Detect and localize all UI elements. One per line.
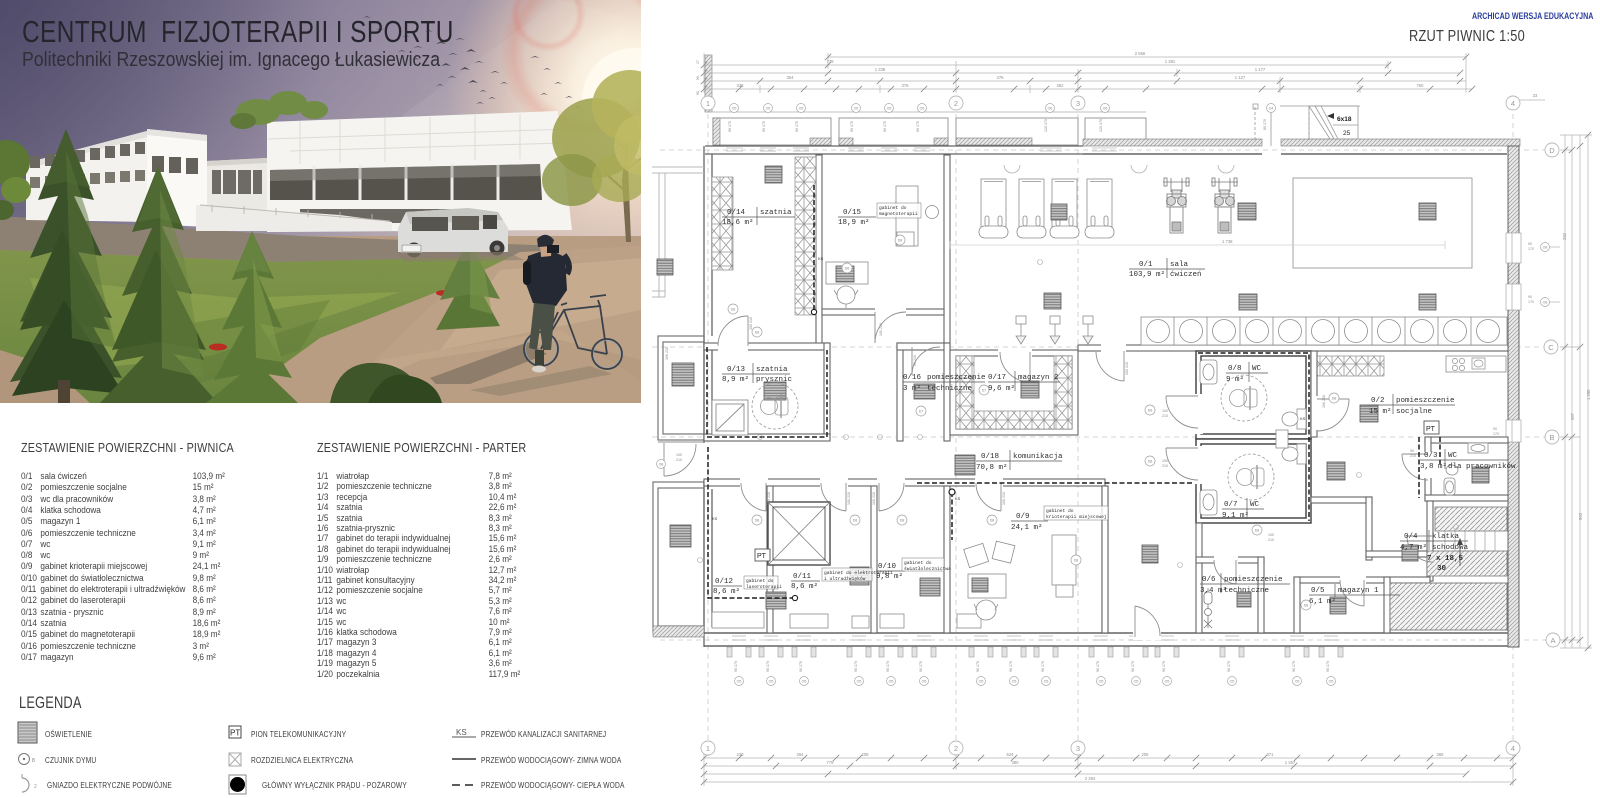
svg-text:90 170: 90 170 (919, 661, 923, 672)
svg-text:0/6: 0/6 (1202, 576, 1216, 584)
svg-text:170: 170 (1528, 300, 1534, 304)
svg-text:90 170: 90 170 (1009, 661, 1013, 672)
svg-text:O5: O5 (887, 107, 892, 111)
svg-text:gabinet do: gabinet do (879, 205, 907, 211)
svg-text:90 170: 90 170 (1041, 661, 1045, 672)
svg-text:9,6 m²: 9,6 m² (988, 384, 1015, 393)
svg-text:O5: O5 (857, 680, 862, 684)
svg-text:sala: sala (1170, 261, 1189, 269)
svg-text:90: 90 (1410, 449, 1414, 453)
svg-text:208: 208 (862, 752, 870, 757)
svg-text:KS: KS (1300, 416, 1306, 421)
svg-text:8,6 m²: 8,6 m² (791, 582, 818, 591)
svg-text:D: D (1549, 146, 1555, 155)
svg-text:KS: KS (712, 516, 718, 521)
svg-text:3: 3 (1076, 99, 1080, 108)
svg-text:D8: D8 (1148, 409, 1153, 413)
svg-text:gabinet do: gabinet do (904, 560, 932, 566)
svg-text:779: 779 (827, 59, 835, 64)
svg-text:1 598: 1 598 (1586, 389, 1591, 400)
svg-text:103,9 m²: 103,9 m² (1129, 270, 1165, 279)
svg-text:100: 100 (1268, 533, 1274, 537)
svg-text:KS: KS (955, 496, 961, 501)
svg-text:4: 4 (1511, 744, 1515, 753)
svg-text:90 170: 90 170 (1292, 661, 1296, 672)
svg-text:3,4 m²: 3,4 m² (1200, 586, 1227, 595)
svg-text:O5: O5 (920, 107, 925, 111)
svg-text:100 210: 100 210 (1322, 395, 1326, 408)
svg-text:100 210: 100 210 (847, 492, 851, 505)
svg-text:90: 90 (1493, 427, 1497, 431)
svg-text:techniczne: techniczne (1224, 587, 1269, 595)
svg-text:90 170: 90 170 (850, 121, 854, 132)
svg-text:90 170: 90 170 (916, 121, 920, 132)
svg-text:magazyn 1: magazyn 1 (1338, 587, 1379, 595)
svg-text:524: 524 (1007, 752, 1015, 757)
svg-text:90 170: 90 170 (854, 661, 858, 672)
svg-text:15 m²: 15 m² (1369, 407, 1392, 416)
svg-text:90 170: 90 170 (886, 661, 890, 672)
svg-text:O5: O5 (922, 680, 927, 684)
svg-text:1: 1 (706, 744, 710, 753)
svg-text:210: 210 (1162, 464, 1168, 468)
svg-text:O8: O8 (1543, 301, 1548, 305)
svg-text:O5: O5 (1329, 680, 1334, 684)
svg-text:80 170: 80 170 (1263, 119, 1267, 130)
svg-text:O5: O5 (1165, 680, 1170, 684)
svg-text:587: 587 (1570, 412, 1575, 420)
svg-text:2: 2 (954, 99, 958, 108)
svg-text:D8: D8 (1332, 397, 1337, 401)
svg-text:0/9: 0/9 (1016, 513, 1030, 521)
svg-text:1: 1 (706, 99, 710, 108)
svg-text:25: 25 (1343, 130, 1351, 137)
svg-text:O8: O8 (1543, 246, 1548, 250)
svg-text:techniczne: techniczne (927, 385, 972, 393)
svg-text:0/14: 0/14 (727, 209, 746, 217)
svg-text:klatka: klatka (1432, 533, 1460, 541)
svg-text:ćwiczeń: ćwiczeń (1170, 271, 1202, 279)
svg-text:B: B (1549, 433, 1554, 442)
svg-text:światłolecznictwa: światłolecznictwa (904, 566, 951, 572)
svg-text:100 210: 100 210 (665, 347, 669, 360)
svg-text:100 210: 100 210 (872, 492, 876, 505)
svg-text:D8: D8 (755, 519, 760, 523)
svg-text:socjalne: socjalne (1396, 408, 1432, 416)
svg-text:szatnia: szatnia (756, 366, 788, 374)
svg-text:prysznic: prysznic (756, 376, 792, 384)
svg-text:17: 17 (696, 60, 700, 64)
svg-text:120 170: 120 170 (1099, 119, 1103, 132)
svg-text:0/18: 0/18 (981, 453, 999, 461)
svg-text:1 127: 1 127 (1235, 75, 1246, 80)
svg-text:1 338: 1 338 (875, 67, 886, 72)
svg-text:D7: D7 (919, 410, 924, 414)
svg-text:D8: D8 (845, 267, 850, 271)
svg-text:dla pracowników: dla pracowników (1448, 463, 1516, 471)
svg-text:0/5: 0/5 (1311, 587, 1325, 595)
svg-text:376: 376 (997, 75, 1005, 80)
svg-text:170: 170 (1528, 247, 1534, 251)
svg-text:6,1 m²: 6,1 m² (1309, 597, 1336, 606)
svg-text:O5: O5 (979, 680, 984, 684)
svg-text:KS: KS (818, 256, 824, 261)
svg-text:6x18: 6x18 (1337, 116, 1352, 123)
svg-text:90: 90 (1528, 242, 1532, 246)
svg-text:362: 362 (1057, 83, 1065, 88)
svg-text:D8: D8 (1255, 529, 1260, 533)
svg-text:gabinet do: gabinet do (746, 578, 774, 584)
svg-text:18,9 m²: 18,9 m² (838, 218, 870, 227)
svg-text:schodowa: schodowa (1432, 544, 1469, 552)
svg-text:90 170: 90 170 (883, 121, 887, 132)
svg-text:380: 380 (1012, 760, 1020, 765)
svg-text:100: 100 (1162, 459, 1168, 463)
svg-text:0/13: 0/13 (727, 366, 746, 374)
svg-text:0/3: 0/3 (1424, 452, 1438, 460)
svg-text:24,1 m²: 24,1 m² (1011, 523, 1043, 532)
svg-text:0/4: 0/4 (1404, 533, 1418, 541)
svg-text:0/11: 0/11 (793, 573, 812, 581)
svg-text:33: 33 (1533, 93, 1538, 98)
svg-text:O4: O4 (1269, 107, 1274, 111)
svg-text:WC: WC (1252, 365, 1262, 373)
svg-text:18,6 m²: 18,6 m² (722, 218, 754, 227)
svg-text:30: 30 (1437, 565, 1447, 573)
svg-text:O5: O5 (1099, 680, 1104, 684)
svg-text:90 170: 90 170 (1227, 661, 1231, 672)
svg-text:963: 963 (1578, 512, 1583, 520)
svg-text:D8: D8 (853, 519, 858, 523)
svg-text:90 170: 90 170 (728, 121, 732, 132)
svg-text:O6: O6 (1048, 107, 1053, 111)
svg-text:100 210: 100 210 (1125, 362, 1129, 375)
svg-text:205: 205 (1142, 752, 1150, 757)
svg-text:210: 210 (676, 458, 682, 462)
svg-text:90 170: 90 170 (795, 121, 799, 132)
svg-text:100: 100 (676, 453, 682, 457)
svg-text:A: A (1550, 636, 1555, 645)
svg-text:90 170: 90 170 (1162, 661, 1166, 672)
svg-text:100 210: 100 210 (749, 317, 753, 330)
svg-text:krioterapii miejscowej: krioterapii miejscowej (1046, 514, 1107, 520)
svg-text:90 170: 90 170 (1096, 661, 1100, 672)
svg-text:90 170: 90 170 (762, 121, 766, 132)
svg-text:0/12: 0/12 (715, 578, 733, 586)
svg-text:90 170: 90 170 (976, 661, 980, 672)
svg-text:PT: PT (1426, 426, 1436, 433)
svg-text:O5: O5 (1230, 680, 1235, 684)
svg-text:O5: O5 (802, 680, 807, 684)
svg-text:O5: O5 (1134, 680, 1139, 684)
svg-text:C: C (1548, 343, 1554, 352)
svg-text:0/7: 0/7 (1224, 501, 1238, 509)
svg-text:D7: D7 (982, 389, 987, 393)
svg-text:O5: O5 (732, 107, 737, 111)
svg-text:8,9 m²: 8,9 m² (722, 375, 749, 384)
svg-text:O5: O5 (1012, 680, 1017, 684)
svg-text:90 170: 90 170 (766, 661, 770, 672)
svg-text:O5: O5 (799, 107, 804, 111)
svg-text:1 381: 1 381 (1165, 59, 1176, 64)
svg-text:D8: D8 (900, 519, 905, 523)
svg-text:D8: D8 (1304, 604, 1309, 608)
svg-text:90: 90 (1528, 295, 1532, 299)
svg-text:0/16: 0/16 (903, 374, 922, 382)
svg-text:D8: D8 (990, 519, 995, 523)
svg-text:O6: O6 (1103, 107, 1108, 111)
svg-text:O8: O8 (659, 463, 664, 467)
svg-text:gabinet do: gabinet do (1046, 508, 1074, 514)
svg-text:0/1: 0/1 (1139, 261, 1153, 269)
svg-text:i ultradźwięków: i ultradźwięków (824, 576, 866, 582)
svg-text:D8: D8 (1074, 559, 1079, 563)
svg-text:90 210: 90 210 (913, 355, 917, 366)
svg-text:9,1 m²: 9,1 m² (1222, 511, 1249, 520)
svg-text:50: 50 (696, 76, 700, 80)
svg-text:90 170: 90 170 (1326, 661, 1330, 672)
svg-text:2 384: 2 384 (1085, 776, 1096, 781)
svg-text:laseroterapii: laseroterapii (746, 584, 782, 590)
svg-text:3,8 m²: 3,8 m² (1420, 462, 1447, 471)
svg-text:120 170: 120 170 (1044, 119, 1048, 132)
svg-text:WC: WC (1250, 501, 1260, 509)
svg-text:O5: O5 (1044, 680, 1049, 684)
svg-text:210: 210 (1410, 454, 1416, 458)
svg-text:3 m²: 3 m² (903, 384, 921, 393)
svg-text:2: 2 (954, 744, 958, 753)
svg-text:pomieszczenie: pomieszczenie (927, 374, 986, 382)
svg-text:371: 371 (1267, 752, 1275, 757)
svg-text:O5: O5 (769, 680, 774, 684)
svg-text:O5: O5 (1295, 680, 1300, 684)
svg-text:90 170: 90 170 (734, 661, 738, 672)
svg-text:D8: D8 (731, 308, 736, 312)
svg-text:170: 170 (1493, 432, 1499, 436)
svg-text:0/8: 0/8 (1228, 365, 1242, 373)
svg-text:750: 750 (1417, 83, 1425, 88)
svg-text:4: 4 (1511, 99, 1515, 108)
svg-text:komunikacja: komunikacja (1013, 453, 1063, 461)
svg-text:D8: D8 (898, 239, 903, 243)
svg-text:O5: O5 (889, 680, 894, 684)
svg-text:magnetoterapii: magnetoterapii (879, 211, 918, 217)
svg-text:9 m²: 9 m² (1226, 375, 1244, 384)
svg-text:376: 376 (902, 83, 910, 88)
svg-text:D8: D8 (755, 331, 760, 335)
svg-text:90 170: 90 170 (799, 661, 803, 672)
svg-text:100 210: 100 210 (1002, 492, 1006, 505)
svg-text:70,8 m²: 70,8 m² (976, 463, 1008, 472)
svg-text:szatnia: szatnia (760, 209, 792, 217)
svg-text:O5: O5 (854, 107, 859, 111)
svg-text:0/15: 0/15 (843, 209, 862, 217)
svg-text:1 738: 1 738 (1222, 239, 1233, 244)
svg-text:4,7 m²: 4,7 m² (1400, 543, 1427, 552)
svg-text:8,6 m²: 8,6 m² (713, 587, 740, 596)
svg-text:2 566: 2 566 (1135, 51, 1146, 56)
svg-text:WC: WC (1448, 452, 1458, 460)
svg-text:365: 365 (1437, 752, 1445, 757)
svg-text:PT: PT (757, 553, 767, 560)
svg-text:O5: O5 (766, 107, 771, 111)
svg-text:0/10: 0/10 (878, 563, 897, 571)
svg-text:gabinet do elektroterapii: gabinet do elektroterapii (824, 570, 893, 576)
svg-text:210: 210 (1162, 414, 1168, 418)
svg-text:1 177: 1 177 (1255, 67, 1266, 72)
svg-text:100: 100 (1162, 409, 1168, 413)
svg-text:pomieszczenie: pomieszczenie (1224, 576, 1283, 584)
svg-text:magazyn 2: magazyn 2 (1018, 374, 1059, 382)
svg-text:264: 264 (797, 752, 805, 757)
svg-text:pomieszczenie: pomieszczenie (1396, 397, 1455, 405)
svg-text:7 x 18,5: 7 x 18,5 (1427, 555, 1464, 563)
svg-text:O5: O5 (737, 680, 742, 684)
svg-text:0/17: 0/17 (988, 374, 1006, 382)
svg-text:D8: D8 (1148, 460, 1153, 464)
svg-text:100 210: 100 210 (879, 323, 883, 336)
svg-text:90: 90 (696, 91, 700, 95)
svg-text:3: 3 (1076, 744, 1080, 753)
svg-text:210: 210 (1268, 538, 1274, 542)
svg-text:0/2: 0/2 (1371, 397, 1385, 405)
svg-text:354: 354 (787, 75, 795, 80)
svg-text:90 170: 90 170 (1131, 661, 1135, 672)
svg-text:100 210: 100 210 (767, 492, 771, 505)
svg-text:292: 292 (1562, 232, 1567, 240)
